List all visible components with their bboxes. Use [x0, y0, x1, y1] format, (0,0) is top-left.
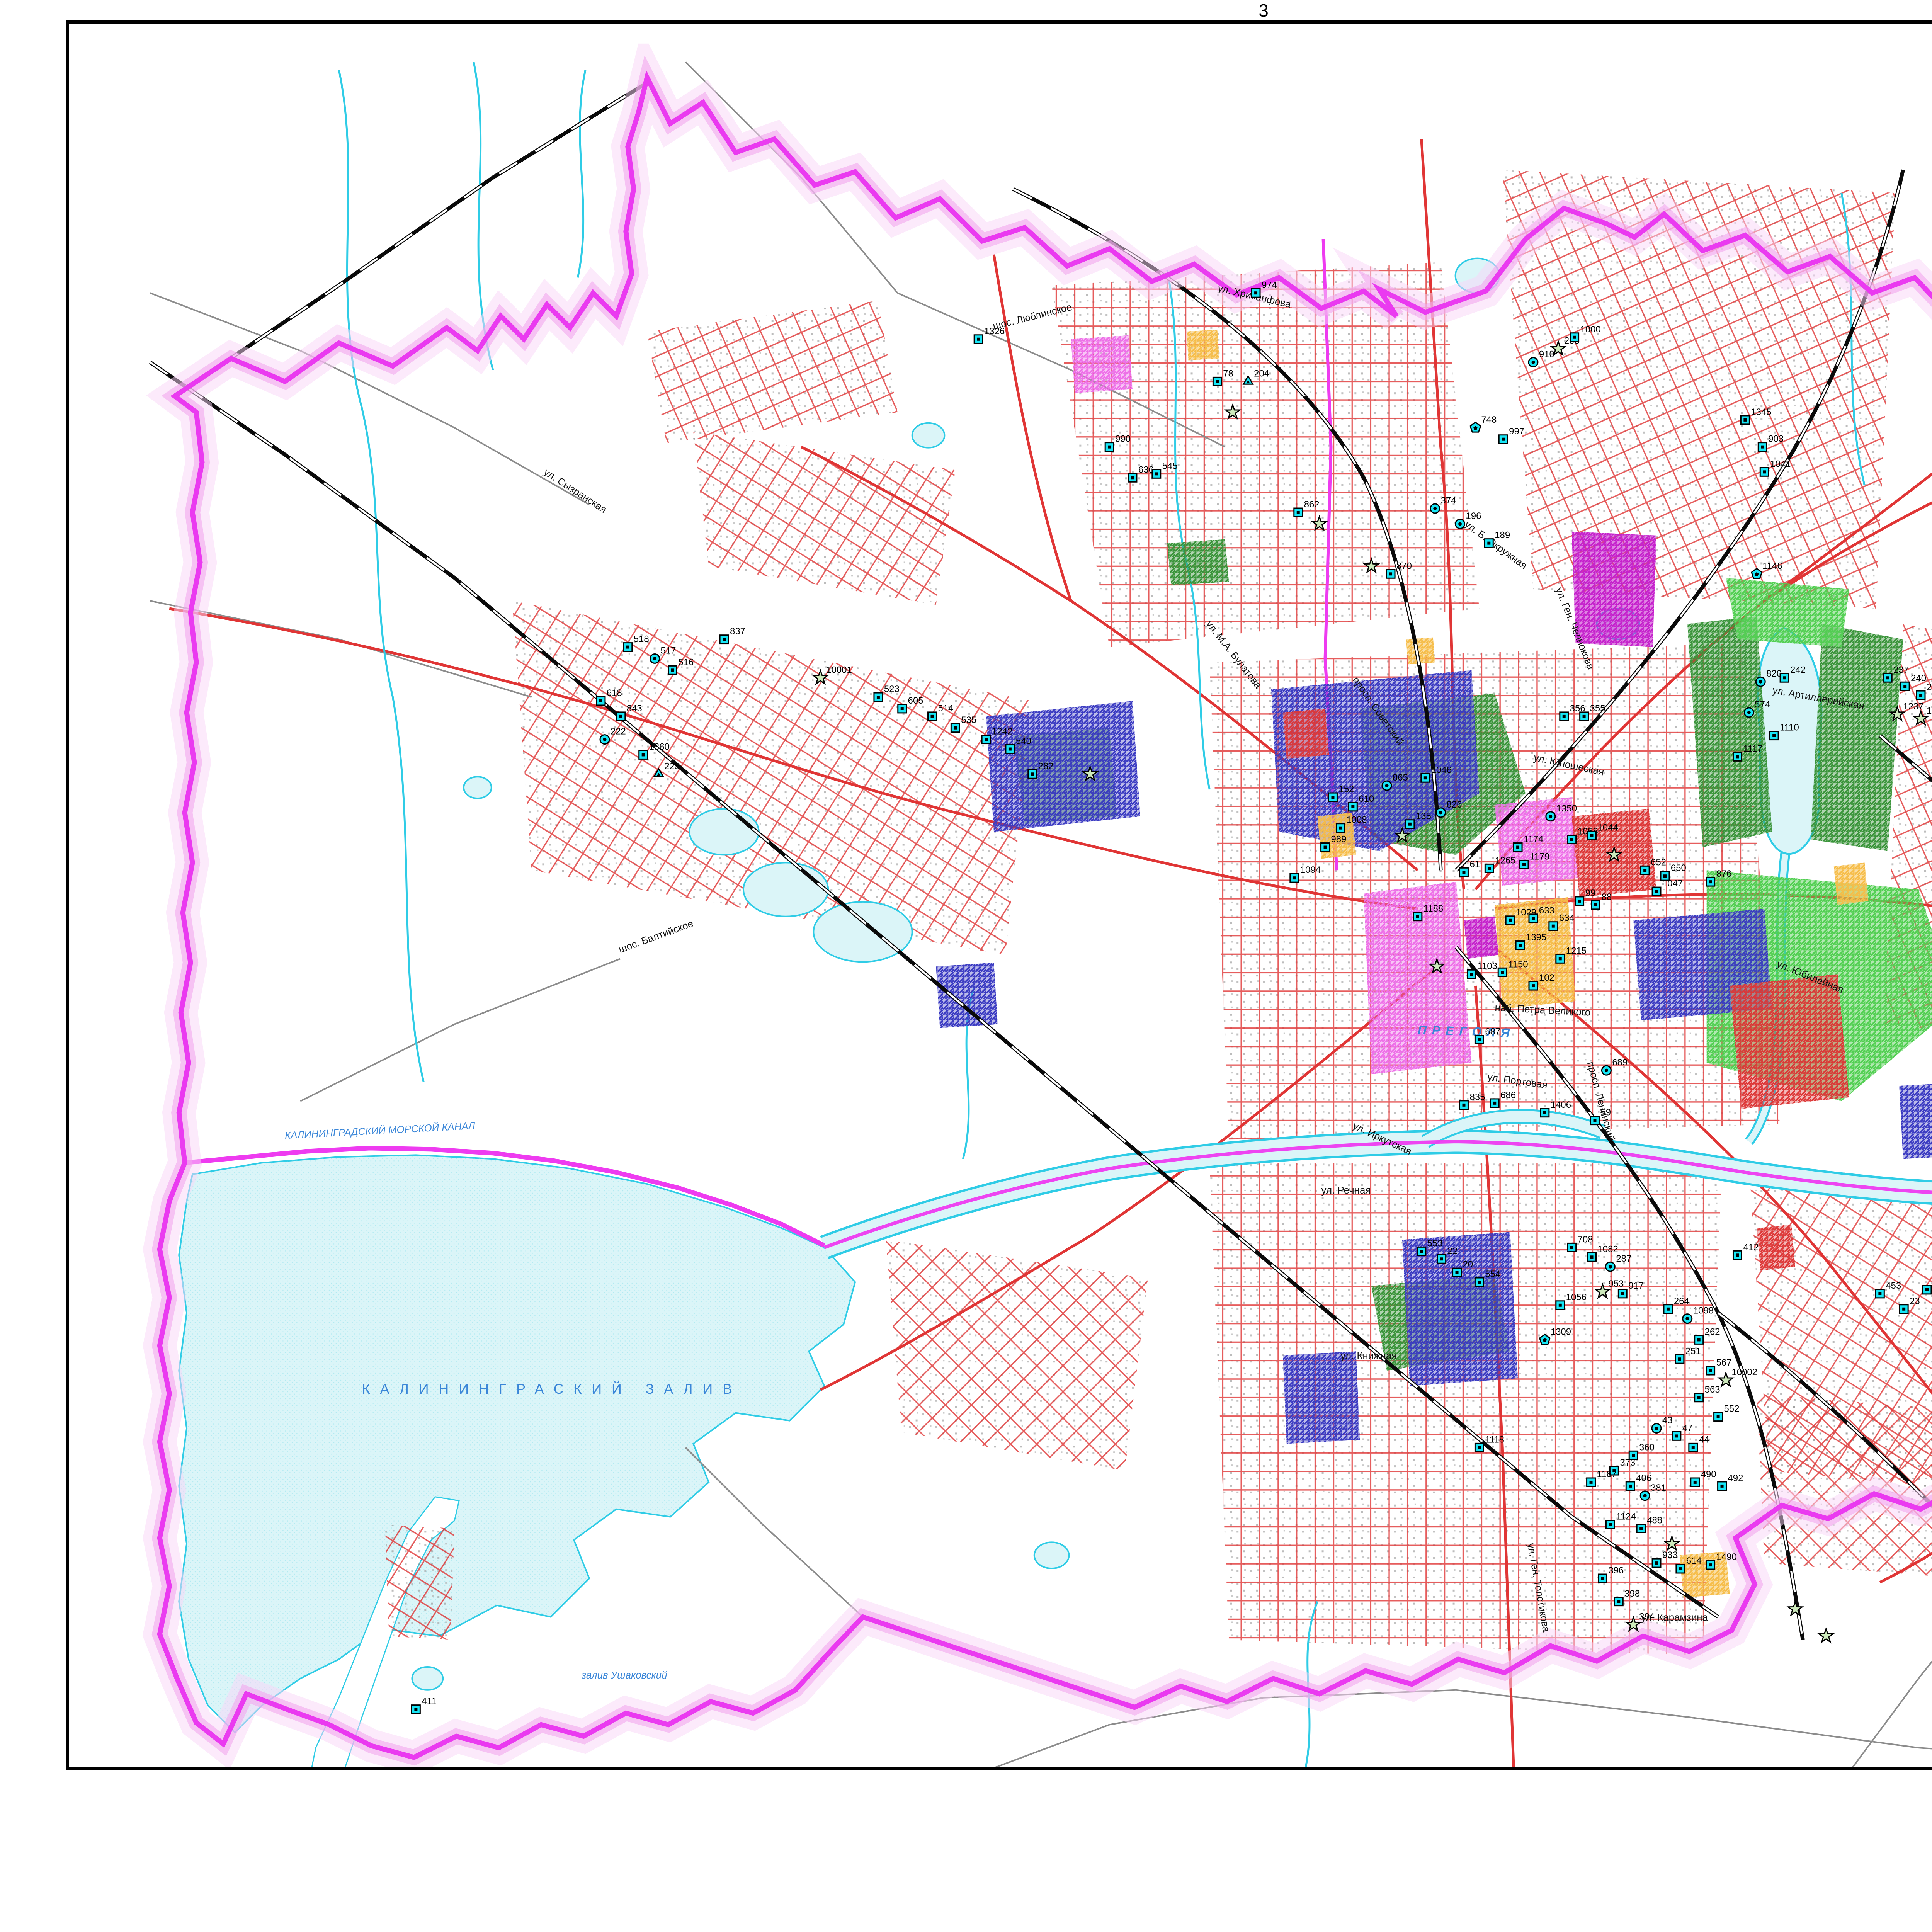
svg-text:748: 748 — [1481, 415, 1497, 425]
svg-text:990: 990 — [1115, 434, 1131, 444]
svg-text:264: 264 — [1674, 1296, 1689, 1306]
svg-text:355: 355 — [1590, 703, 1605, 714]
svg-text:636: 636 — [1138, 464, 1154, 475]
svg-text:1047: 1047 — [1662, 878, 1683, 889]
svg-text:689: 689 — [1612, 1057, 1628, 1068]
svg-text:1238: 1238 — [1927, 706, 1932, 716]
svg-text:240: 240 — [1911, 673, 1926, 684]
svg-text:687: 687 — [1485, 1027, 1500, 1037]
city-map-canvas: ул. Сызранскаяшос. Люблинскоеул. Хрисанф… — [69, 24, 1932, 1767]
svg-text:1188: 1188 — [1423, 903, 1443, 914]
map-label: КАЛИНИНГРАСКИЙ ЗАЛИВ — [362, 1381, 742, 1397]
nto-marker — [1819, 1629, 1833, 1642]
svg-text:1167: 1167 — [1597, 1469, 1616, 1480]
svg-text:135: 135 — [1416, 811, 1431, 821]
nto-marker: 552 — [1714, 1404, 1740, 1421]
svg-text:1490: 1490 — [1716, 1552, 1737, 1562]
svg-text:396: 396 — [1608, 1565, 1624, 1576]
svg-text:262: 262 — [1705, 1327, 1720, 1337]
svg-text:1406: 1406 — [1551, 1100, 1571, 1110]
map-label: КАЛИНИНГРАДСКИЙ МОРСКОЙ КАНАЛ — [284, 1120, 475, 1141]
svg-text:974: 974 — [1262, 280, 1277, 290]
nto-marker: 412 — [1733, 1242, 1759, 1259]
svg-text:870: 870 — [1396, 561, 1412, 571]
svg-text:1309: 1309 — [1551, 1327, 1571, 1337]
svg-text:411: 411 — [422, 1696, 436, 1707]
svg-text:406: 406 — [1636, 1473, 1651, 1483]
svg-text:1150: 1150 — [1508, 959, 1528, 969]
svg-text:633: 633 — [1539, 905, 1554, 916]
svg-text:381: 381 — [1651, 1483, 1666, 1493]
map-label: ул. Книжная — [1340, 1350, 1397, 1361]
svg-text:152: 152 — [1338, 784, 1354, 794]
svg-text:540: 540 — [1016, 736, 1031, 747]
svg-text:398: 398 — [1624, 1588, 1640, 1599]
page-number: 3 — [66, 0, 1932, 21]
svg-text:10002: 10002 — [1731, 1367, 1757, 1378]
svg-text:1360: 1360 — [649, 742, 670, 752]
svg-text:1098: 1098 — [1693, 1306, 1714, 1316]
svg-text:917: 917 — [1628, 1281, 1644, 1291]
svg-text:865: 865 — [1393, 772, 1408, 783]
svg-text:43: 43 — [1662, 1415, 1673, 1426]
svg-text:1110: 1110 — [1780, 723, 1799, 733]
svg-text:241: 241 — [1927, 682, 1932, 692]
svg-text:1215: 1215 — [1566, 946, 1587, 956]
svg-text:1146: 1146 — [1762, 561, 1782, 571]
svg-text:1041: 1041 — [1770, 459, 1791, 469]
svg-text:204: 204 — [1254, 368, 1269, 379]
svg-text:514: 514 — [938, 703, 953, 714]
svg-text:862: 862 — [1304, 499, 1320, 510]
svg-text:1174: 1174 — [1524, 834, 1543, 845]
svg-text:843: 843 — [627, 703, 642, 714]
svg-text:826: 826 — [1447, 799, 1462, 810]
svg-text:523: 523 — [884, 684, 900, 694]
map-label: залив Ушаковский — [581, 1670, 667, 1681]
svg-text:488: 488 — [1647, 1515, 1662, 1526]
svg-text:933: 933 — [1662, 1550, 1678, 1560]
svg-text:614: 614 — [1686, 1556, 1702, 1566]
map-label: ул. Сызранская — [542, 467, 609, 515]
svg-text:490: 490 — [1701, 1469, 1716, 1480]
svg-text:1242: 1242 — [992, 726, 1012, 737]
svg-text:953: 953 — [1608, 1279, 1624, 1289]
map-label: ул. Речная — [1321, 1185, 1371, 1196]
svg-text:492: 492 — [1728, 1473, 1743, 1483]
svg-text:23: 23 — [1910, 1296, 1920, 1306]
svg-text:1326: 1326 — [984, 326, 1005, 337]
svg-text:1103: 1103 — [1477, 961, 1497, 971]
nto-marker: 492 — [1718, 1473, 1743, 1490]
svg-text:1082: 1082 — [1597, 1244, 1618, 1254]
svg-text:634: 634 — [1559, 913, 1575, 923]
svg-text:517: 517 — [661, 646, 676, 656]
nto-marker: 997 — [1499, 426, 1524, 444]
svg-text:610: 610 — [1359, 794, 1374, 804]
svg-text:1118: 1118 — [1485, 1434, 1504, 1445]
svg-text:196: 196 — [1466, 511, 1481, 521]
svg-text:650: 650 — [1671, 863, 1686, 873]
svg-text:1237: 1237 — [1903, 701, 1923, 712]
nto-marker: 748 — [1470, 415, 1497, 432]
svg-text:516: 516 — [678, 657, 694, 667]
svg-text:1008: 1008 — [1346, 815, 1367, 825]
svg-text:1345: 1345 — [1751, 407, 1771, 417]
svg-text:563: 563 — [1705, 1384, 1720, 1395]
svg-text:708: 708 — [1578, 1234, 1593, 1245]
svg-text:1056: 1056 — [1566, 1292, 1587, 1303]
svg-text:394: 394 — [1639, 1612, 1655, 1622]
nto-marker: 837 — [720, 626, 745, 644]
svg-text:22: 22 — [1447, 1246, 1458, 1256]
svg-text:189: 189 — [1495, 530, 1510, 541]
nto-marker: 411 — [412, 1696, 436, 1714]
svg-text:61: 61 — [1469, 859, 1480, 869]
svg-text:910: 910 — [1539, 349, 1554, 360]
svg-text:835: 835 — [1469, 1092, 1485, 1102]
svg-text:1124: 1124 — [1616, 1512, 1636, 1522]
svg-text:287: 287 — [1616, 1253, 1631, 1264]
svg-text:374: 374 — [1441, 495, 1456, 506]
svg-text:237: 237 — [1893, 665, 1909, 675]
svg-text:1117: 1117 — [1743, 743, 1762, 754]
svg-text:518: 518 — [634, 634, 649, 645]
svg-text:553: 553 — [1427, 1238, 1443, 1248]
map-label: шос. Балтийское — [617, 918, 695, 955]
svg-text:242: 242 — [1790, 665, 1806, 675]
svg-text:453: 453 — [1886, 1281, 1901, 1291]
svg-text:1179: 1179 — [1530, 851, 1549, 862]
svg-text:1000: 1000 — [1580, 324, 1601, 335]
svg-text:903: 903 — [1768, 434, 1784, 444]
svg-text:222: 222 — [611, 726, 626, 737]
nto-marker: 10002 — [1719, 1367, 1757, 1386]
svg-text:99: 99 — [1585, 888, 1596, 898]
svg-text:282: 282 — [1038, 761, 1054, 771]
svg-text:997: 997 — [1509, 426, 1524, 437]
svg-text:605: 605 — [908, 696, 923, 706]
svg-text:837: 837 — [730, 626, 745, 637]
svg-text:88: 88 — [1601, 892, 1612, 902]
map-frame: ул. Сызранскаяшос. Люблинскоеул. Хрисанф… — [66, 20, 1932, 1770]
svg-text:1350: 1350 — [1556, 803, 1577, 814]
svg-text:1395: 1395 — [1526, 932, 1546, 943]
svg-text:686: 686 — [1500, 1090, 1516, 1100]
svg-text:652: 652 — [1651, 857, 1666, 867]
svg-text:47: 47 — [1682, 1423, 1693, 1433]
svg-text:78: 78 — [1223, 368, 1233, 379]
svg-text:1265: 1265 — [1495, 855, 1515, 866]
svg-text:574: 574 — [1755, 699, 1770, 710]
svg-text:876: 876 — [1716, 869, 1732, 879]
svg-text:251: 251 — [1685, 1346, 1701, 1356]
svg-text:412: 412 — [1743, 1242, 1759, 1252]
svg-text:360: 360 — [1639, 1442, 1655, 1452]
svg-text:820: 820 — [1766, 668, 1782, 679]
svg-text:554: 554 — [1485, 1269, 1500, 1279]
svg-text:225: 225 — [665, 761, 680, 771]
scheme-sheet: 3 ул. Сызранскаяшос. Люблинскоеул. Хриса… — [0, 0, 1932, 1932]
svg-text:1046: 1046 — [1431, 765, 1452, 775]
svg-text:102: 102 — [1539, 973, 1554, 983]
svg-text:552: 552 — [1724, 1404, 1740, 1414]
svg-text:44: 44 — [1699, 1434, 1709, 1445]
svg-text:373: 373 — [1620, 1458, 1635, 1468]
svg-text:545: 545 — [1162, 461, 1178, 471]
svg-text:20: 20 — [1463, 1259, 1473, 1270]
svg-text:989: 989 — [1331, 834, 1346, 845]
svg-text:567: 567 — [1716, 1357, 1732, 1368]
svg-text:59: 59 — [1600, 1107, 1611, 1118]
svg-text:1094: 1094 — [1300, 865, 1321, 875]
svg-text:10001: 10001 — [826, 665, 852, 675]
svg-text:618: 618 — [607, 688, 622, 698]
svg-text:1044: 1044 — [1597, 823, 1618, 833]
svg-text:535: 535 — [961, 715, 976, 725]
